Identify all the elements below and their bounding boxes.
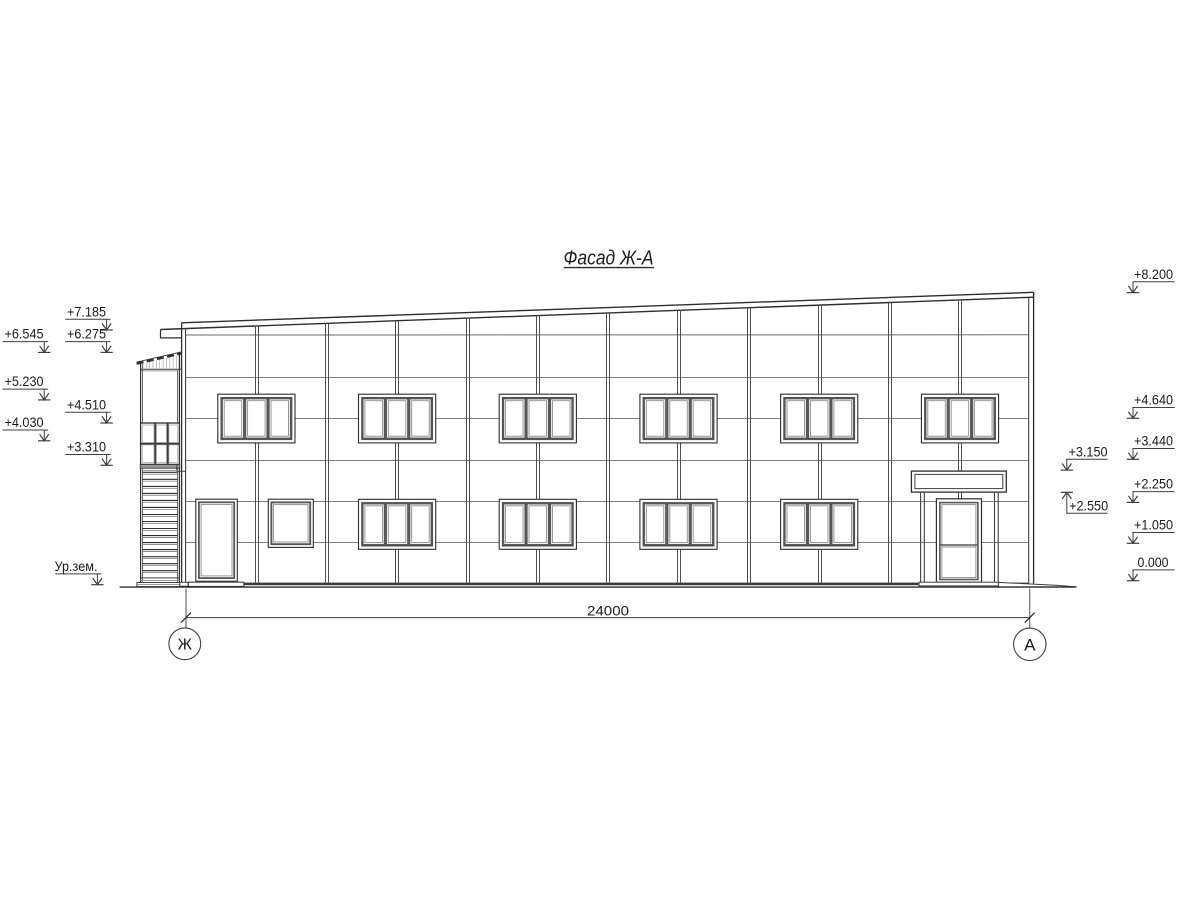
svg-text:Ур.зем.: Ур.зем. (55, 559, 98, 574)
svg-text:+3.440: +3.440 (1134, 434, 1173, 449)
svg-text:А: А (1024, 635, 1036, 654)
svg-text:Ж: Ж (178, 636, 193, 653)
svg-text:24000: 24000 (587, 604, 629, 619)
svg-text:+8.200: +8.200 (1134, 267, 1173, 282)
svg-text:Фасад Ж-А: Фасад Ж-А (564, 247, 654, 269)
svg-text:+1.050: +1.050 (1134, 518, 1173, 533)
svg-text:+7.185: +7.185 (67, 304, 106, 319)
svg-text:+4.030: +4.030 (5, 415, 44, 430)
svg-text:+2.550: +2.550 (1069, 498, 1108, 513)
svg-text:+2.250: +2.250 (1134, 477, 1173, 492)
svg-text:+4.640: +4.640 (1134, 393, 1173, 408)
svg-text:+6.545: +6.545 (5, 327, 44, 342)
svg-text:0.000: 0.000 (1138, 555, 1169, 570)
svg-text:+5.230: +5.230 (5, 374, 44, 389)
svg-text:+3.150: +3.150 (1069, 444, 1108, 459)
svg-text:+3.310: +3.310 (67, 440, 106, 455)
svg-text:+6.275: +6.275 (67, 327, 106, 342)
svg-text:+4.510: +4.510 (67, 397, 106, 412)
